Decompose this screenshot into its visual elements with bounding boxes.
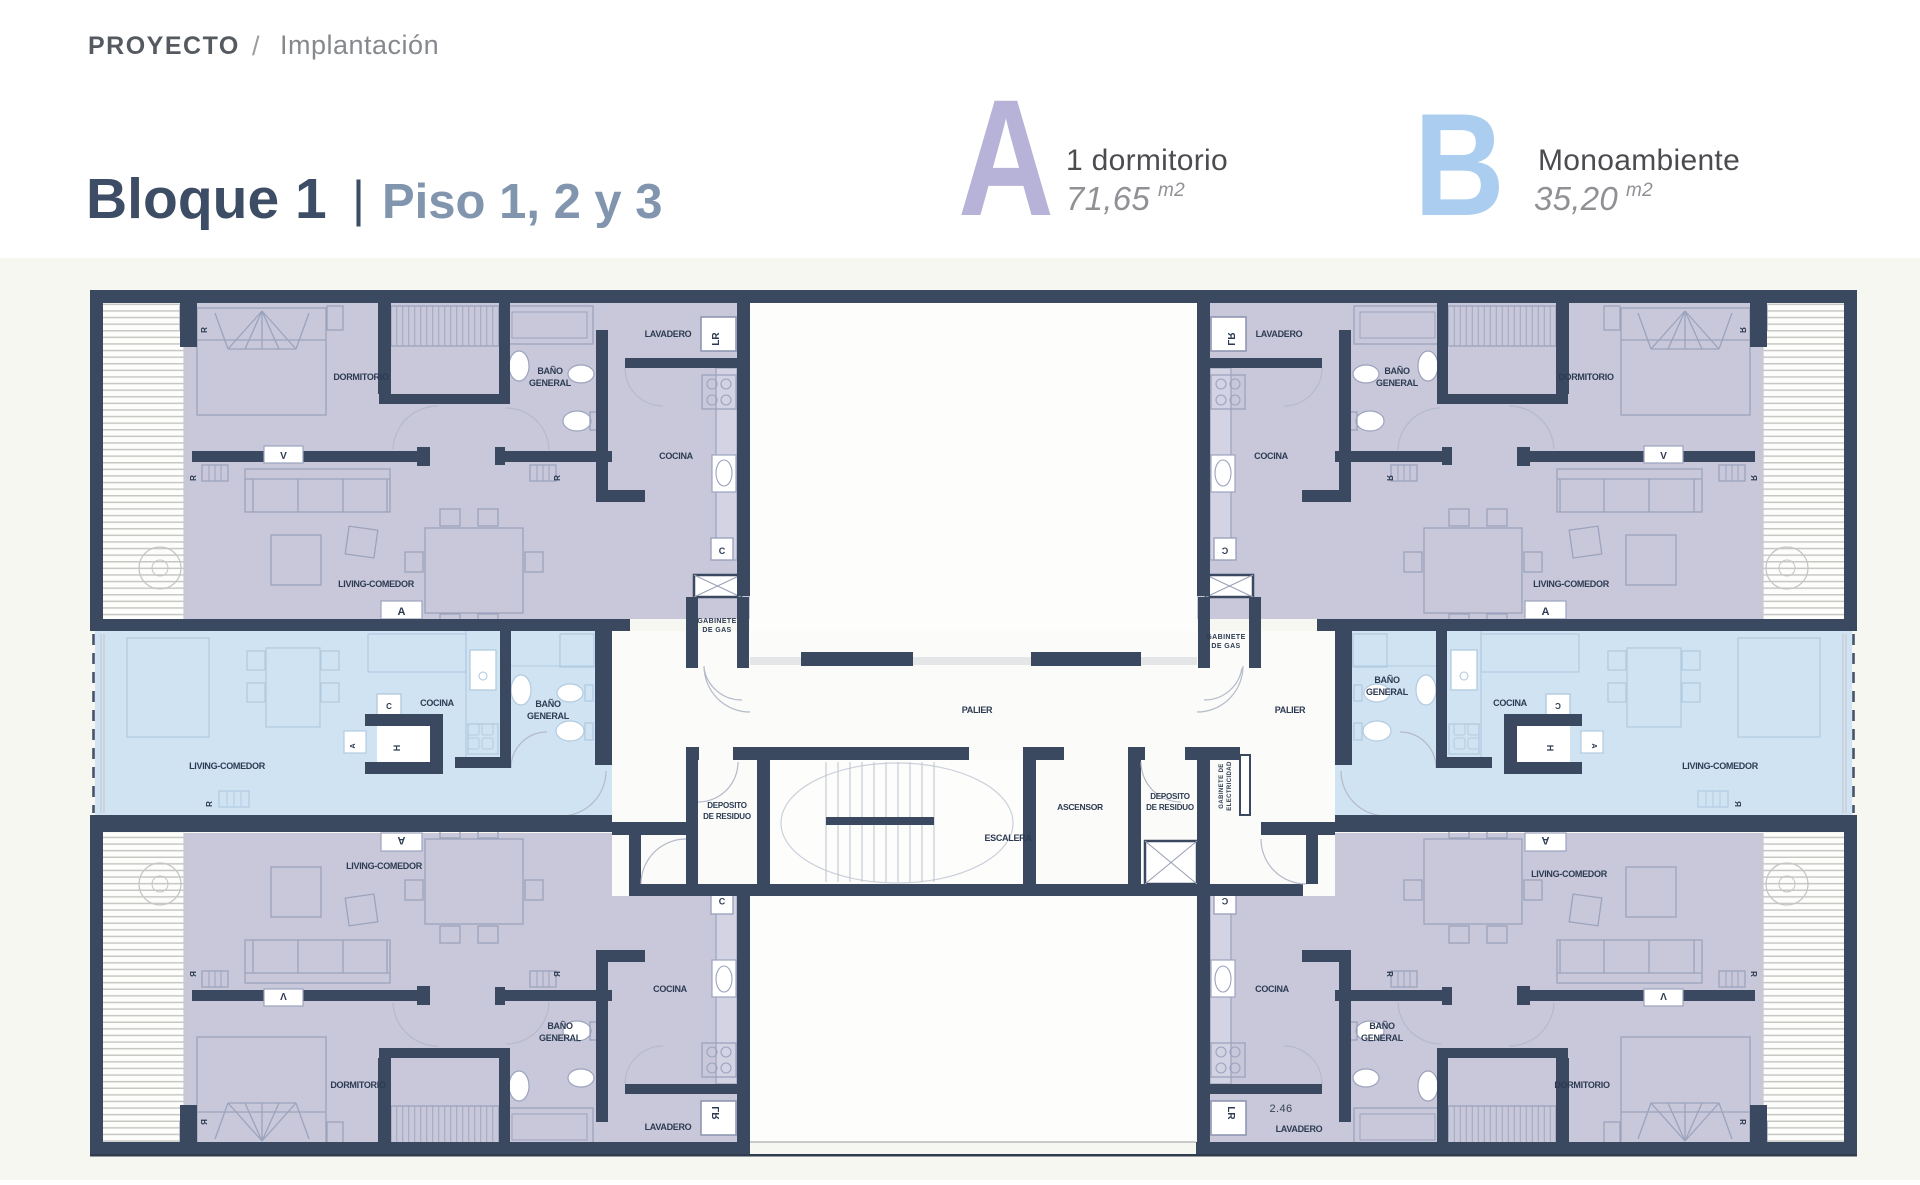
svg-text:R: R	[553, 475, 562, 481]
svg-text:Implantación: Implantación	[280, 30, 439, 60]
svg-text:LIVING-COMEDOR: LIVING-COMEDOR	[1531, 869, 1608, 879]
svg-text:BAÑO: BAÑO	[535, 699, 561, 709]
svg-text:R: R	[1749, 475, 1758, 481]
svg-text:BAÑO: BAÑO	[1384, 366, 1410, 376]
svg-text:R: R	[1385, 475, 1394, 481]
svg-text:2.46: 2.46	[1269, 1103, 1292, 1115]
svg-text:B: B	[1414, 83, 1505, 246]
svg-text:V: V	[280, 990, 287, 1001]
svg-text:GENERAL: GENERAL	[527, 711, 570, 721]
svg-text:R: R	[553, 971, 562, 977]
svg-text:R: R	[1733, 801, 1742, 807]
svg-text:BAÑO: BAÑO	[1369, 1021, 1395, 1031]
svg-text:C: C	[1221, 546, 1228, 556]
svg-text:DORMITORIO: DORMITORIO	[1554, 1080, 1610, 1090]
svg-text:R: R	[1385, 971, 1394, 977]
svg-text:R: R	[189, 971, 198, 977]
svg-text:H: H	[392, 745, 402, 752]
svg-text:R: R	[1738, 327, 1747, 333]
svg-text:BAÑO: BAÑO	[537, 366, 563, 376]
svg-text:Bloque 1: Bloque 1	[86, 167, 327, 231]
svg-text:COCINA: COCINA	[1255, 984, 1289, 994]
svg-text:H: H	[1545, 745, 1555, 752]
svg-text:R: R	[200, 1119, 209, 1125]
svg-text:LR: LR	[711, 1106, 722, 1120]
svg-text:1 dormitorio: 1 dormitorio	[1066, 144, 1228, 177]
svg-text:R: R	[200, 327, 209, 333]
svg-text:DORMITORIO: DORMITORIO	[1558, 372, 1614, 382]
svg-text:Monoambiente: Monoambiente	[1538, 144, 1740, 177]
svg-text:/: /	[252, 31, 260, 61]
svg-text:DE GAS: DE GAS	[1211, 643, 1240, 650]
svg-text:BAÑO: BAÑO	[547, 1021, 573, 1031]
svg-text:V: V	[1660, 990, 1667, 1001]
svg-text:LR: LR	[711, 332, 722, 346]
svg-text:A: A	[958, 65, 1054, 251]
svg-text:COCINA: COCINA	[659, 451, 693, 461]
svg-text:GABINETE: GABINETE	[1206, 634, 1245, 641]
svg-text:A: A	[398, 834, 406, 846]
svg-text:DEPOSITO: DEPOSITO	[707, 801, 747, 810]
svg-text:|: |	[352, 171, 365, 227]
svg-text:ESCALERA: ESCALERA	[984, 833, 1032, 843]
svg-text:LIVING-COMEDOR: LIVING-COMEDOR	[1682, 761, 1759, 771]
svg-text:LIVING-COMEDOR: LIVING-COMEDOR	[346, 861, 423, 871]
svg-text:DE GAS: DE GAS	[702, 627, 731, 634]
svg-text:LIVING-COMEDOR: LIVING-COMEDOR	[1533, 579, 1610, 589]
svg-text:LR: LR	[1225, 1106, 1236, 1120]
svg-text:GENERAL: GENERAL	[1366, 687, 1409, 697]
svg-text:C: C	[719, 896, 726, 906]
svg-text:R: R	[189, 475, 198, 481]
svg-text:LAVADERO: LAVADERO	[645, 1122, 692, 1132]
svg-text:LR: LR	[1225, 332, 1236, 346]
svg-text:35,20: 35,20	[1534, 180, 1618, 217]
svg-text:COCINA: COCINA	[653, 984, 687, 994]
svg-text:LIVING-COMEDOR: LIVING-COMEDOR	[338, 579, 415, 589]
svg-text:Piso 1, 2 y 3: Piso 1, 2 y 3	[382, 175, 663, 229]
svg-text:COCINA: COCINA	[1493, 698, 1527, 708]
svg-text:LAVADERO: LAVADERO	[645, 329, 692, 339]
svg-text:A: A	[350, 743, 357, 748]
svg-text:C: C	[719, 546, 726, 556]
svg-text:A: A	[1541, 606, 1549, 618]
svg-text:ASCENSOR: ASCENSOR	[1057, 802, 1103, 812]
svg-text:A: A	[398, 606, 406, 618]
svg-text:C: C	[1221, 896, 1228, 906]
svg-text:71,65: 71,65	[1066, 180, 1150, 217]
svg-text:DE RESIDUO: DE RESIDUO	[1146, 803, 1194, 812]
svg-text:GENERAL: GENERAL	[539, 1033, 582, 1043]
svg-text:C: C	[386, 702, 392, 711]
svg-text:GABINETE: GABINETE	[697, 618, 736, 625]
svg-text:PALIER: PALIER	[962, 705, 993, 715]
svg-text:A: A	[1590, 743, 1597, 748]
svg-text:PROYECTO: PROYECTO	[88, 32, 240, 60]
svg-text:A: A	[1541, 834, 1549, 846]
svg-text:LAVADERO: LAVADERO	[1276, 1124, 1323, 1134]
svg-text:BAÑO: BAÑO	[1374, 675, 1400, 685]
svg-text:m2: m2	[1626, 180, 1653, 201]
svg-text:COCINA: COCINA	[1254, 451, 1288, 461]
svg-text:DE RESIDUO: DE RESIDUO	[703, 812, 751, 821]
svg-text:R: R	[1738, 1119, 1747, 1125]
svg-text:LIVING-COMEDOR: LIVING-COMEDOR	[189, 761, 266, 771]
svg-text:DORMITORIO: DORMITORIO	[333, 372, 389, 382]
svg-text:LAVADERO: LAVADERO	[1256, 329, 1303, 339]
svg-text:GENERAL: GENERAL	[529, 378, 572, 388]
svg-text:GABINETE DE: GABINETE DE	[1219, 763, 1225, 808]
svg-text:DORMITORIO: DORMITORIO	[330, 1080, 386, 1090]
svg-text:DEPOSITO: DEPOSITO	[1150, 792, 1190, 801]
svg-text:PALIER: PALIER	[1275, 705, 1306, 715]
svg-text:COCINA: COCINA	[420, 698, 454, 708]
svg-text:R: R	[205, 801, 214, 807]
svg-text:GENERAL: GENERAL	[1376, 378, 1419, 388]
svg-text:C: C	[1555, 702, 1561, 711]
svg-text:V: V	[1660, 451, 1667, 462]
svg-text:GENERAL: GENERAL	[1361, 1033, 1404, 1043]
svg-text:V: V	[280, 451, 287, 462]
svg-text:ELECTRICIDAD: ELECTRICIDAD	[1227, 761, 1233, 811]
svg-text:R: R	[1749, 971, 1758, 977]
svg-text:m2: m2	[1158, 180, 1185, 201]
